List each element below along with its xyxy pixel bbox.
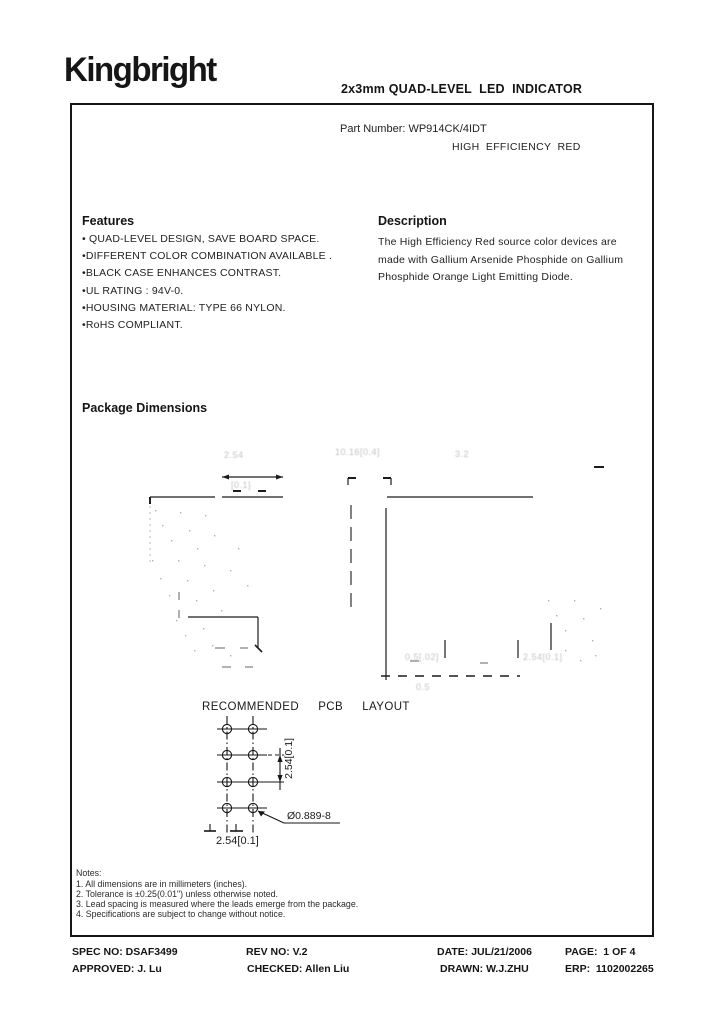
note-item: 4. Specifications are subject to change …: [76, 909, 285, 919]
footer-approved: APPROVED: J. Lu: [72, 963, 162, 975]
feature-item: •DIFFERENT COLOR COMBINATION AVAILABLE .: [82, 250, 332, 262]
feature-item: •BLACK CASE ENHANCES CONTRAST.: [82, 267, 281, 279]
pcb-hole-callout: Ø0.889-8: [287, 810, 331, 822]
feature-item: •UL RATING : 94V-0.: [82, 285, 183, 297]
faint-dim-bottom-right: 2.54[0.1]: [523, 652, 563, 662]
feature-item: • QUAD-LEVEL DESIGN, SAVE BOARD SPACE.: [82, 233, 319, 245]
pcb-dim-vertical: 2.54[0.1]: [283, 738, 295, 779]
note-item: 2. Tolerance is ±0.25(0.01") unless othe…: [76, 889, 278, 899]
part-number: Part Number: WP914CK/4IDT: [340, 123, 487, 135]
feature-item: •RoHS COMPLIANT.: [82, 319, 183, 331]
faint-dim-side-top: 10.16[0.4]: [335, 447, 380, 457]
faint-dim-below-line: 0.5: [416, 682, 430, 692]
description-heading: Description: [378, 214, 447, 228]
description-text: The High Efficiency Red source color dev…: [378, 234, 636, 287]
note-item: 1. All dimensions are in millimeters (in…: [76, 879, 247, 889]
faint-dim-bottom-mid: 0.5[.02]: [405, 652, 439, 662]
notes-heading: Notes:: [76, 868, 101, 878]
package-dimensions-heading: Package Dimensions: [82, 401, 207, 415]
content-border-box: [70, 103, 654, 937]
footer-page: PAGE: 1 OF 4: [565, 946, 635, 958]
note-item: 3. Lead spacing is measured where the le…: [76, 899, 358, 909]
pcb-dim-horizontal: 2.54[0.1]: [216, 835, 259, 847]
kingbright-logo: Kingbright: [64, 50, 216, 90]
footer-checked: CHECKED: Allen Liu: [247, 963, 349, 975]
doc-title: 2x3mm QUAD-LEVEL LED INDICATOR: [341, 82, 582, 96]
feature-item: •HOUSING MATERIAL: TYPE 66 NYLON.: [82, 302, 286, 314]
footer-date: DATE: JUL/21/2006: [437, 946, 532, 958]
features-heading: Features: [82, 214, 134, 228]
footer-erp: ERP: 1102002265: [565, 963, 654, 975]
footer-drawn: DRAWN: W.J.ZHU: [440, 963, 529, 975]
color-name: HIGH EFFICIENCY RED: [452, 141, 581, 153]
faint-dim-side-top-right: 3.2: [455, 449, 469, 459]
footer-spec-no: SPEC NO: DSAF3499: [72, 946, 178, 958]
footer-rev-no: REV NO: V.2: [246, 946, 307, 958]
datasheet-page: Kingbright 2x3mm QUAD-LEVEL LED INDICATO…: [0, 0, 720, 1012]
faint-dim-front-top-in: [0.1]: [231, 480, 251, 490]
faint-dim-front-top-mm: 2.54: [224, 450, 244, 460]
pcb-layout-title: RECOMMENDED PCB LAYOUT: [202, 701, 410, 713]
